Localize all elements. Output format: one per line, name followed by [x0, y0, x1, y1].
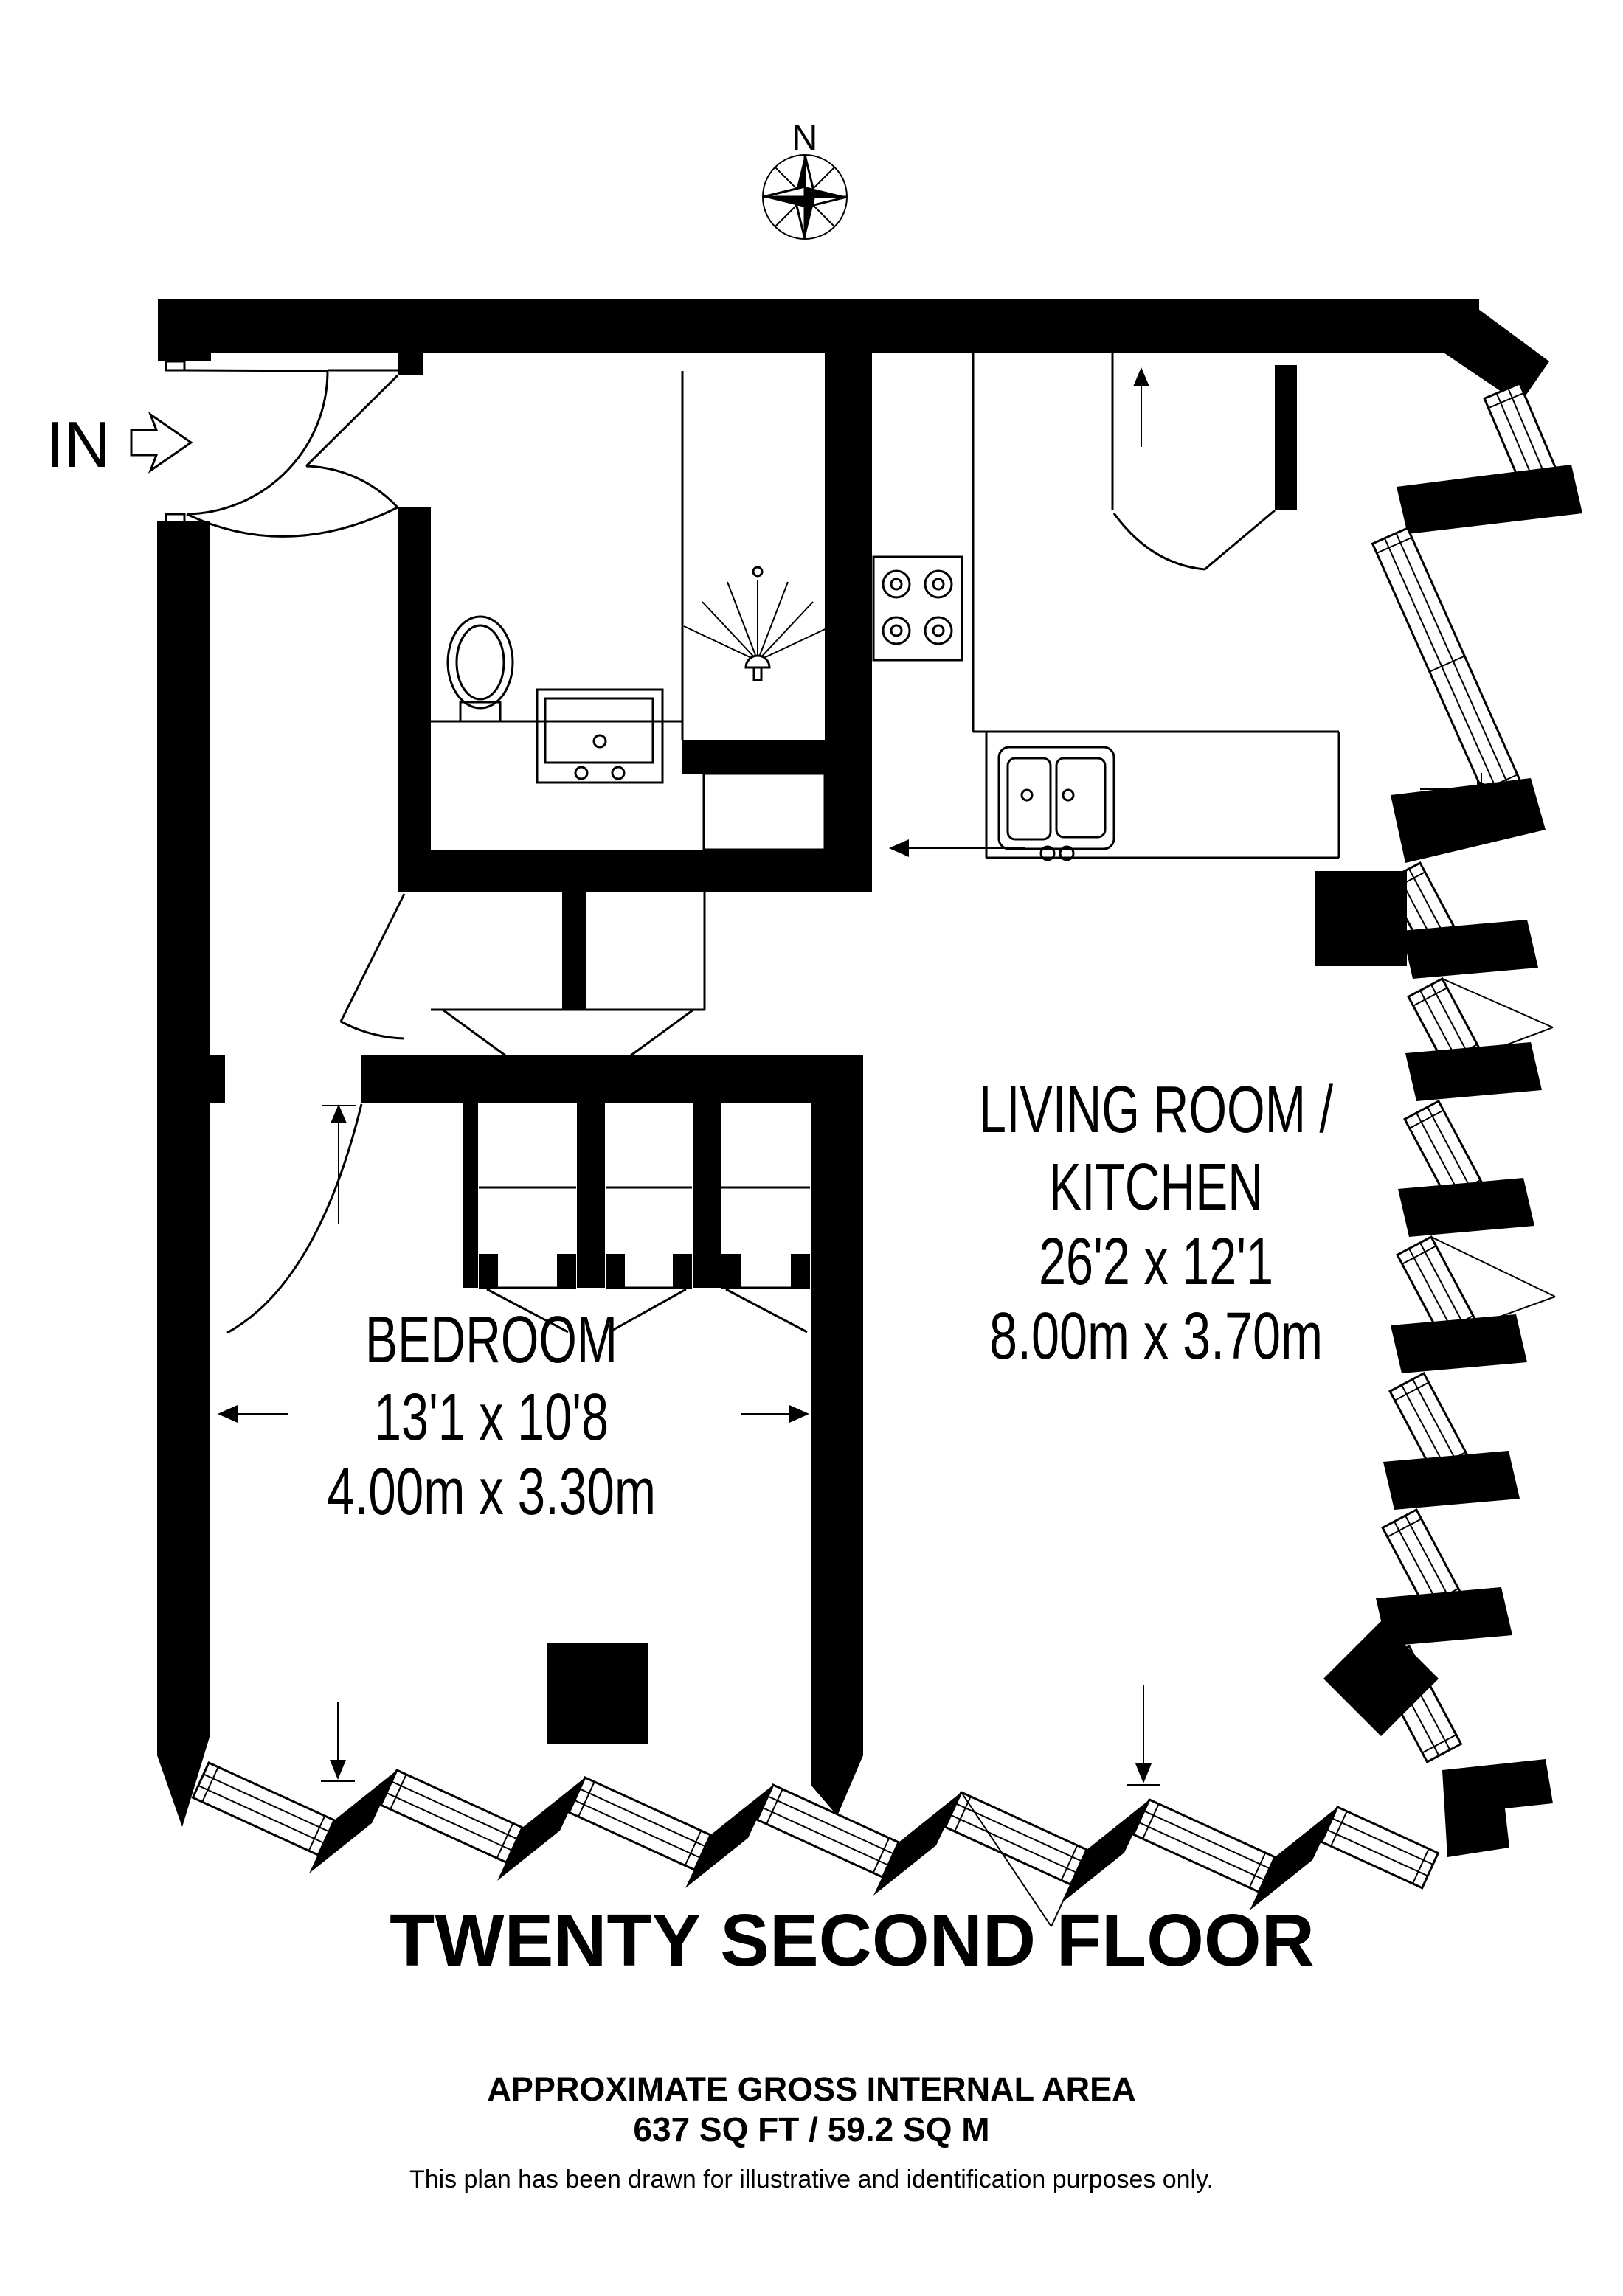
burner: [925, 571, 952, 597]
wall-segment: [1391, 778, 1546, 863]
burner: [883, 571, 910, 597]
room-label-living: LIVING ROOM / KITCHEN 26'2 x 12'1 8.00m …: [979, 1073, 1333, 1373]
room-label-bedroom: BEDROOM 13'1 x 10'8 4.00m x 3.30m: [327, 1303, 656, 1529]
floorplan-page: N IN: [0, 0, 1623, 2296]
door-swing-arc: [187, 507, 398, 536]
vanity-knob: [612, 767, 624, 779]
shower-head-icon: [684, 567, 831, 680]
door-jamb: [166, 361, 184, 370]
door-leaf: [1205, 510, 1275, 569]
entrance-arrow-icon: [131, 415, 191, 471]
living-dims-imperial: 26'2 x 12'1: [1039, 1225, 1273, 1299]
living-name-line1: LIVING ROOM /: [979, 1073, 1333, 1147]
stove-icon: [873, 557, 962, 660]
wardrobe-door-leaf: [609, 1289, 686, 1332]
toilet-icon: [448, 617, 513, 721]
walls: [157, 299, 1479, 1827]
bedroom-name: BEDROOM: [365, 1303, 617, 1377]
wall-bathroom-left: [398, 507, 431, 892]
dimension-arrow-utility-up: [1133, 367, 1149, 447]
compass-north-label: N: [792, 119, 818, 158]
wall-corner: [1442, 1759, 1553, 1857]
entry-door: [184, 370, 328, 514]
dimension-arrow-kitchen-left: [889, 839, 1025, 857]
bedroom-door: [227, 1104, 361, 1333]
bedroom-dims-imperial: 13'1 x 10'8: [374, 1381, 609, 1454]
entrance-label: IN: [46, 408, 111, 481]
window-strip: [569, 1778, 710, 1870]
wardrobe-mullion: [693, 1103, 721, 1288]
door-swing-arc: [341, 1022, 404, 1038]
burner: [891, 579, 902, 589]
compass-rose-icon: N: [763, 119, 847, 239]
floor-title: TWENTY SECOND FLOOR: [390, 1899, 1315, 1982]
wall-utility: [1275, 365, 1297, 510]
wall-bedroom-top: [210, 1055, 225, 1103]
wardrobe-mullion: [463, 1103, 478, 1288]
wall-bathroom-bottom: [398, 850, 872, 892]
wall-segment: [1405, 1042, 1542, 1101]
wall-jamb: [398, 353, 423, 375]
wall-segment: [1391, 1314, 1527, 1373]
shower-dot: [753, 567, 762, 576]
toilet-bowl-inner: [457, 625, 504, 699]
window-strip: [193, 1763, 334, 1855]
burner: [933, 625, 944, 636]
burner: [933, 579, 944, 589]
burner: [925, 617, 952, 644]
wall-closet-divider: [562, 892, 586, 1010]
disclaimer: This plan has been drawn for illustrativ…: [409, 2165, 1214, 2193]
structural-column: [1315, 871, 1407, 966]
vanity-inner: [545, 698, 653, 763]
wall-left: [157, 521, 210, 1706]
wardrobe-door-leaf: [726, 1289, 807, 1332]
wall-left-end: [157, 1689, 210, 1827]
bedroom-dims-metric: 4.00m x 3.30m: [327, 1455, 656, 1529]
door-swing-arc: [306, 466, 398, 507]
burner: [891, 625, 902, 636]
wall-segment: [1398, 1178, 1534, 1237]
door-leaf: [184, 370, 328, 371]
hall-closet-door: [341, 894, 404, 1038]
vanity-knob: [575, 767, 587, 779]
wardrobe: [463, 1103, 810, 1332]
door-leaf: [306, 375, 398, 466]
structural-column-bedroom: [547, 1643, 648, 1744]
vanity-tap: [594, 735, 606, 747]
living-dims-metric: 8.00m x 3.70m: [989, 1300, 1323, 1373]
double-sink-icon: [999, 747, 1114, 860]
area-value: 637 SQ FT / 59.2 SQ M: [633, 2110, 989, 2148]
wardrobe-foot: [606, 1254, 625, 1288]
sink-tap: [1022, 790, 1032, 800]
wardrobe-foot: [721, 1254, 741, 1288]
wardrobe-mullion: [577, 1103, 605, 1288]
window-strip: [1372, 528, 1521, 800]
bathroom-door: [187, 375, 398, 536]
stove-outline: [873, 557, 962, 660]
wardrobe-foot: [791, 1254, 810, 1288]
wardrobe-foot: [557, 1254, 576, 1288]
shower-spray: [758, 602, 813, 661]
wall-bedroom-top: [361, 1055, 845, 1103]
door-swing-arc: [227, 1104, 361, 1333]
dimension-arrow-bedroom-right: [741, 1405, 809, 1423]
wall-top-left-corner: [158, 299, 211, 361]
door-swing-arc: [187, 372, 328, 514]
wall-segment: [1383, 1451, 1520, 1510]
living-name-line2: KITCHEN: [1049, 1151, 1263, 1224]
dimension-arrow-bedroom-left: [218, 1405, 288, 1423]
door-leaf: [341, 894, 404, 1022]
window-strip: [381, 1770, 522, 1862]
facade-right: [1372, 299, 1582, 1857]
shower-stem: [754, 667, 761, 680]
shower-spray: [702, 602, 758, 661]
sink-tap: [1063, 790, 1073, 800]
area-heading: APPROXIMATE GROSS INTERNAL AREA: [487, 2070, 1135, 2108]
burner: [883, 617, 910, 644]
window-strip: [1133, 1800, 1275, 1892]
shower-tray: [704, 774, 825, 850]
wardrobe-foot: [479, 1254, 498, 1288]
vanity-basin-icon: [537, 690, 662, 783]
wall-divider-end: [811, 1704, 863, 1816]
door-jamb: [166, 514, 184, 522]
wall-segment: [1397, 465, 1582, 534]
wall-shower: [682, 740, 825, 774]
dimension-arrow-bedroom-down: [321, 1702, 355, 1781]
window-strip: [945, 1792, 1087, 1884]
wardrobe-foot: [673, 1254, 692, 1288]
dimension-arrow-living-down: [1127, 1685, 1160, 1785]
compass-point: [763, 187, 805, 197]
wall-top: [158, 299, 1479, 353]
floorplan-drawing: N IN: [0, 0, 1623, 2296]
wall-divider: [811, 1055, 863, 1704]
window-strip: [1321, 1807, 1438, 1888]
wall-kitchen: [825, 353, 872, 892]
dimension-arrow-bedroom-door-up: [322, 1104, 356, 1224]
door-swing-arc: [1114, 513, 1205, 569]
